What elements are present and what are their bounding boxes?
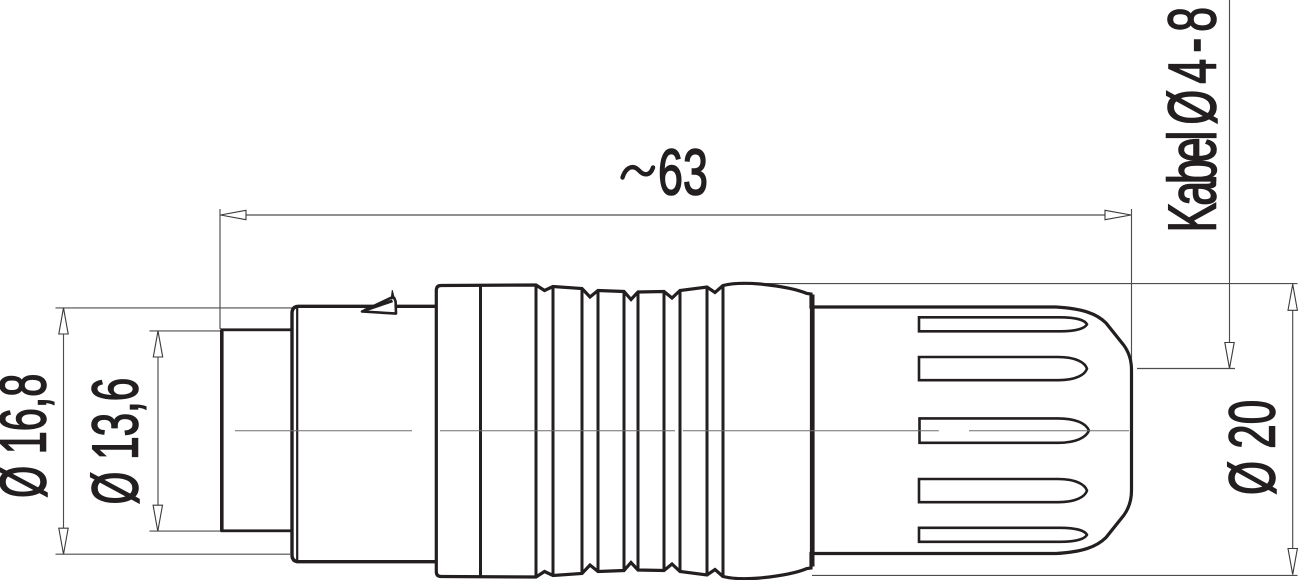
svg-text:Ø 20: Ø 20 bbox=[1216, 400, 1289, 495]
svg-text:Kabel Ø 4 - 8: Kabel Ø 4 - 8 bbox=[1155, 8, 1231, 232]
svg-text:63: 63 bbox=[658, 135, 708, 208]
svg-text:Ø 16,8: Ø 16,8 bbox=[0, 374, 60, 498]
svg-text:Ø 13,6: Ø 13,6 bbox=[78, 378, 152, 505]
